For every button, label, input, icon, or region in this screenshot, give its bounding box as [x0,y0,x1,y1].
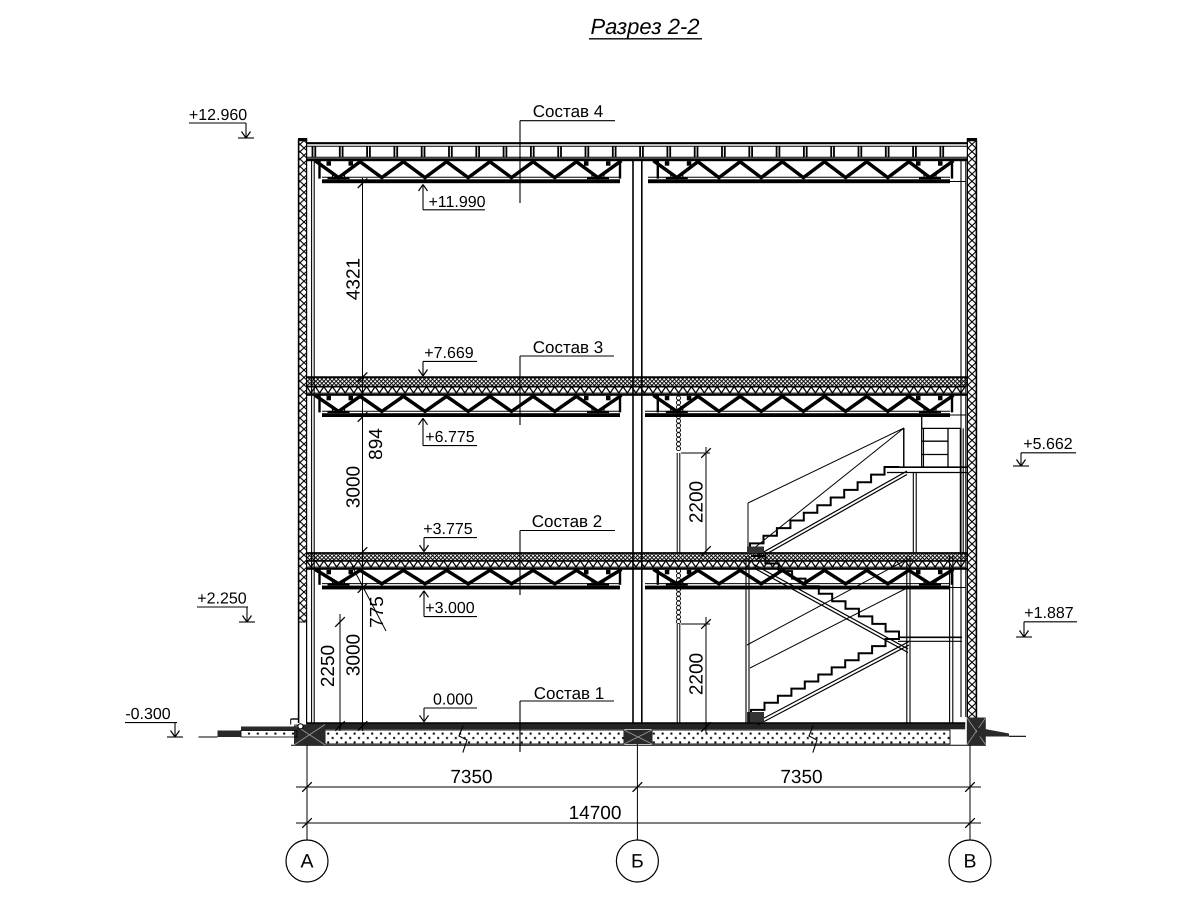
svg-text:А: А [300,851,313,873]
svg-text:2250: 2250 [318,645,339,687]
svg-text:+3.000: +3.000 [425,600,474,617]
svg-text:7350: 7350 [780,767,822,788]
svg-text:2200: 2200 [687,653,708,695]
svg-text:+6.775: +6.775 [425,429,474,446]
svg-text:-0.300: -0.300 [125,706,170,723]
svg-text:Состав 1: Состав 1 [534,684,605,703]
svg-text:+7.669: +7.669 [424,345,473,362]
svg-text:+5.662: +5.662 [1023,436,1072,453]
svg-text:+2.250: +2.250 [197,591,246,608]
svg-text:3000: 3000 [344,634,365,676]
svg-text:В: В [963,851,976,873]
svg-text:+11.990: +11.990 [428,194,485,211]
svg-text:Состав 2: Состав 2 [532,512,603,531]
svg-text:3000: 3000 [344,466,365,508]
svg-text:7350: 7350 [450,767,492,788]
svg-text:+12.960: +12.960 [189,107,247,124]
svg-text:894: 894 [366,428,387,460]
svg-text:4321: 4321 [344,258,365,300]
svg-text:0.000: 0.000 [433,692,473,709]
svg-text:+1.887: +1.887 [1024,605,1073,622]
svg-text:14700: 14700 [569,803,622,824]
svg-text:Разрез 2-2: Разрез 2-2 [590,14,699,39]
svg-text:2200: 2200 [687,481,708,523]
svg-text:Б: Б [631,851,644,873]
svg-text:Состав 4: Состав 4 [533,102,604,121]
svg-text:+3.775: +3.775 [423,521,472,538]
svg-text:Состав 3: Состав 3 [533,338,604,357]
